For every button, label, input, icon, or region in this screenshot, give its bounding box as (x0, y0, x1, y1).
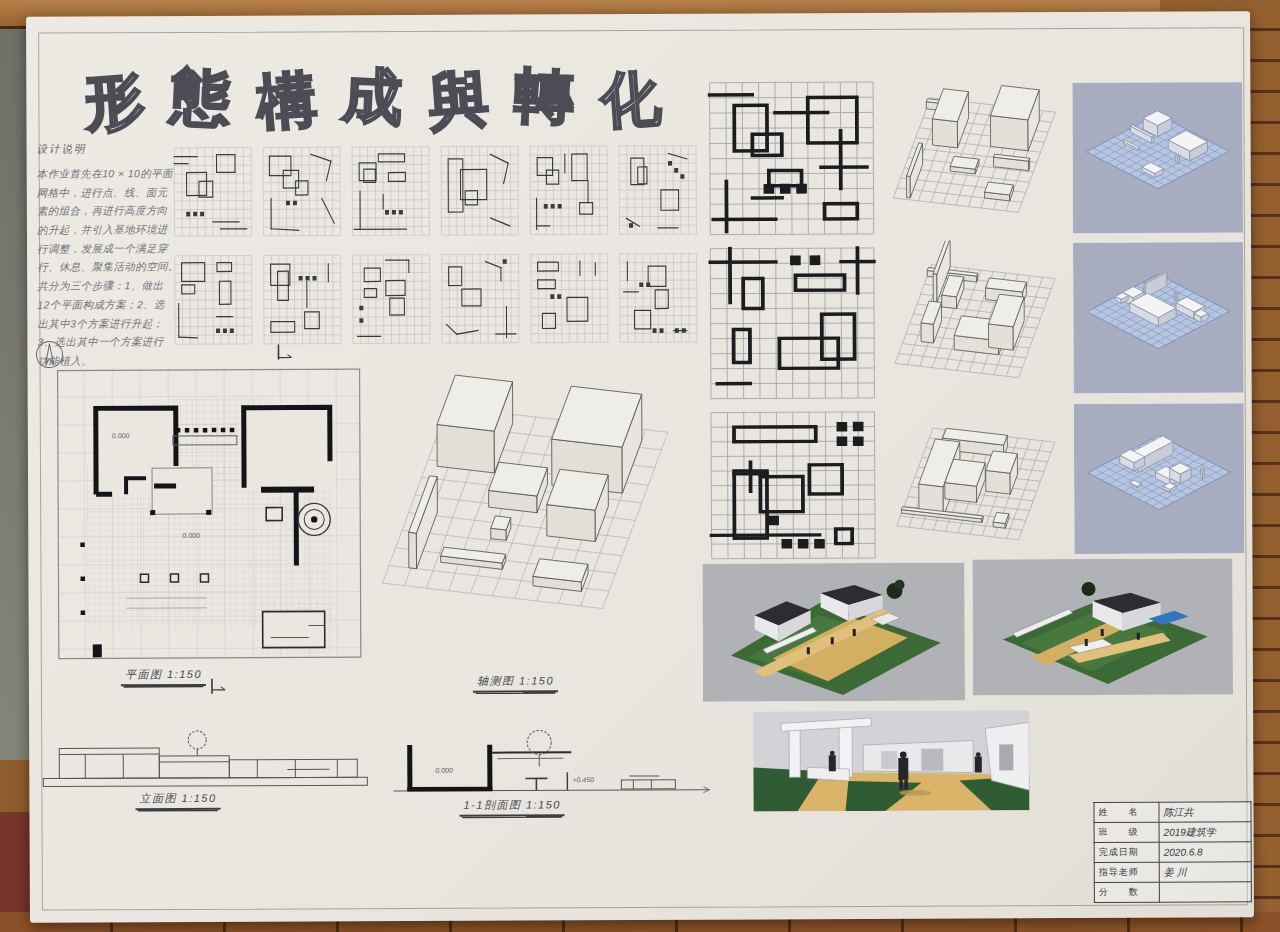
sequence-plan-diagram (708, 409, 879, 562)
design-notes-line: 本作业首先在10 × 10的平面 (37, 164, 195, 183)
section-cut-icon (275, 343, 297, 361)
title-block-label: 指导老师 (1094, 862, 1159, 882)
svg-text:0.000: 0.000 (435, 767, 453, 774)
title-character: 化 (599, 68, 663, 132)
title-block-table: 姓 名陈江共班 级2019建筑学完成日期2020.6.8指导老师姜 川分 数 (1093, 801, 1251, 903)
svg-text:0.000: 0.000 (182, 532, 200, 539)
title-character: 成 (341, 66, 404, 129)
title-block-row: 班 级2019建筑学 (1094, 822, 1251, 843)
grid-study-plan (351, 253, 431, 345)
sequence-axon-diagram (885, 240, 1062, 401)
title-block-row: 姓 名陈江共 (1094, 802, 1251, 823)
massing-model-image (1072, 81, 1243, 234)
grid-study-plan (440, 253, 520, 345)
grid-study-plan (262, 253, 342, 345)
title-block-row: 完成日期2020.6.8 (1094, 842, 1251, 863)
design-notes-line: 行调整，发展成一个满足穿 (37, 239, 195, 258)
design-notes-line: 的升起，并引入基地环境进 (37, 220, 195, 239)
elevation-label: 立面图 1:150 (135, 788, 220, 810)
aerial-render-left (702, 563, 965, 702)
design-notes-line: 素的组合，再进行高度方向 (37, 201, 195, 220)
title-character: 轉 (513, 65, 576, 128)
design-notes: 设计说明 本作业首先在10 × 10的平面网格中，进行点、线、面元素的组合，再进… (37, 142, 196, 370)
section-cut-icon (209, 678, 231, 696)
axon-label: 轴测图 1:150 (473, 670, 558, 692)
title-block-value: 姜 川 (1159, 862, 1251, 882)
presentation-board: 形態構成與轉化 设计说明 本作业首先在10 × 10的平面网格中，进行点、线、面… (26, 11, 1254, 922)
perspective-render (753, 710, 1029, 811)
title-block-value: 2019建筑学 (1159, 822, 1251, 842)
title-character: 形 (83, 70, 147, 134)
sequence-plan-diagram (707, 245, 878, 402)
grid-studies-matrix (173, 144, 699, 346)
massing-model-image (1073, 241, 1244, 394)
title-block-value (1159, 882, 1251, 902)
section-label: 1-1剖面图 1:150 (459, 794, 565, 816)
north-arrow-icon (33, 339, 65, 371)
grid-study-plan (262, 145, 342, 237)
sequence-axon-diagram (886, 404, 1063, 563)
grid-study-plan (173, 254, 253, 346)
title-block-value: 2020.6.8 (1159, 842, 1251, 862)
design-notes-line: 共分为三个步骤：1、做出 (37, 276, 195, 295)
design-notes-line: 12个平面构成方案；2、选 (37, 295, 195, 314)
floor-plan-drawing: 0.000 0.000 (56, 367, 363, 660)
aerial-render-right (972, 558, 1233, 695)
sequence-axon-diagram (884, 72, 1061, 237)
title-block-row: 指导老师姜 川 (1094, 862, 1251, 883)
grid-study-plan (618, 144, 698, 236)
grid-study-plan (351, 145, 431, 237)
svg-text:+0.450: +0.450 (572, 776, 594, 783)
design-notes-line: 出其中3个方案进行升起； (37, 313, 195, 332)
sequence-plan-diagram (706, 79, 877, 238)
grid-study-plan (529, 252, 609, 344)
title-character: 態 (169, 67, 232, 130)
massing-model-image (1074, 403, 1245, 554)
svg-text:0.000: 0.000 (112, 432, 130, 439)
title-block-row: 分 数 (1094, 882, 1251, 903)
title-block-label: 完成日期 (1094, 842, 1159, 862)
grid-study-plan (440, 145, 520, 237)
title-character: 與 (427, 69, 491, 133)
grid-study-plan (529, 144, 609, 236)
title-block-label: 班 级 (1094, 822, 1159, 842)
grid-study-plan (173, 146, 253, 238)
grid-study-plan (618, 252, 698, 344)
photo-scene: 形態構成與轉化 设计说明 本作业首先在10 × 10的平面网格中，进行点、线、面… (0, 0, 1280, 932)
design-notes-line: 网格中，进行点、线、面元 (37, 183, 195, 202)
title-block-label: 分 数 (1094, 882, 1159, 902)
plan-label: 平面图 1:150 (121, 664, 206, 686)
design-notes-heading: 设计说明 (37, 142, 195, 157)
design-notes-line: 行、休息、聚集活动的空间。 (37, 257, 195, 276)
title-character: 構 (255, 69, 319, 133)
title-block: 姓 名陈江共班 级2019建筑学完成日期2020.6.8指导老师姜 川分 数 (1093, 801, 1251, 903)
title-block-value: 陈江共 (1159, 802, 1251, 822)
axonometric-drawing (370, 364, 673, 663)
title-block-label: 姓 名 (1094, 802, 1159, 822)
